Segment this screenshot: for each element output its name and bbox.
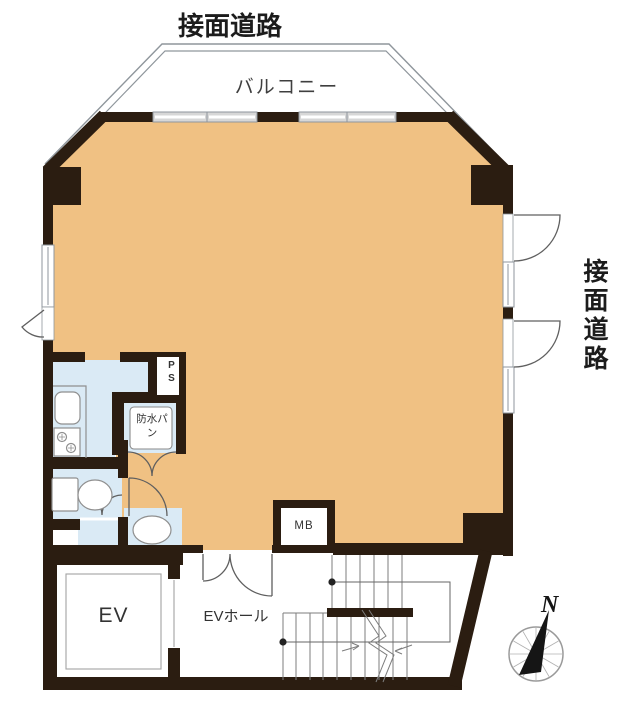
- north-label: N: [541, 592, 558, 619]
- stair-handrail: [327, 608, 413, 617]
- bottom-wall: [43, 677, 462, 690]
- floor-plan: 接面道路 接面道路 バルコニー PS 防水パン MB EV EVホール N: [0, 0, 618, 710]
- slop-sink: [133, 516, 171, 544]
- basin-floor: [78, 519, 118, 547]
- entrance-double-door: [203, 554, 272, 596]
- toilet-tank: [52, 478, 78, 511]
- right-door-opening: [503, 319, 513, 367]
- stove: [54, 428, 80, 456]
- pipe-space-label: PS: [159, 360, 177, 386]
- road-label-top: 接面道路: [115, 6, 345, 43]
- right-door-swing-upper: [514, 215, 560, 261]
- toilet-bowl: [78, 480, 112, 510]
- compass: [509, 610, 563, 681]
- bottom-right-diagonal-wall: [454, 551, 486, 686]
- left-pillar: [43, 167, 81, 205]
- balcony-label: バルコニー: [207, 72, 367, 99]
- mail-box-label: MB: [280, 520, 328, 532]
- staircase: [279, 555, 450, 682]
- right-door-opening: [503, 214, 513, 262]
- kitchen-sink: [55, 392, 80, 424]
- floor-fills: [50, 113, 506, 554]
- stair-break-line: [362, 610, 387, 682]
- road-label-right: 接面道路: [574, 258, 612, 374]
- right-pillar: [471, 165, 513, 205]
- elevator-label: EV: [66, 604, 161, 628]
- right-door-swing-lower: [514, 321, 560, 367]
- left-door-opening: [42, 307, 54, 340]
- waterproof-pan-label: 防水パン: [132, 412, 172, 440]
- elevator-hall-label: EVホール: [192, 605, 280, 626]
- left-casement-swing: [22, 310, 44, 337]
